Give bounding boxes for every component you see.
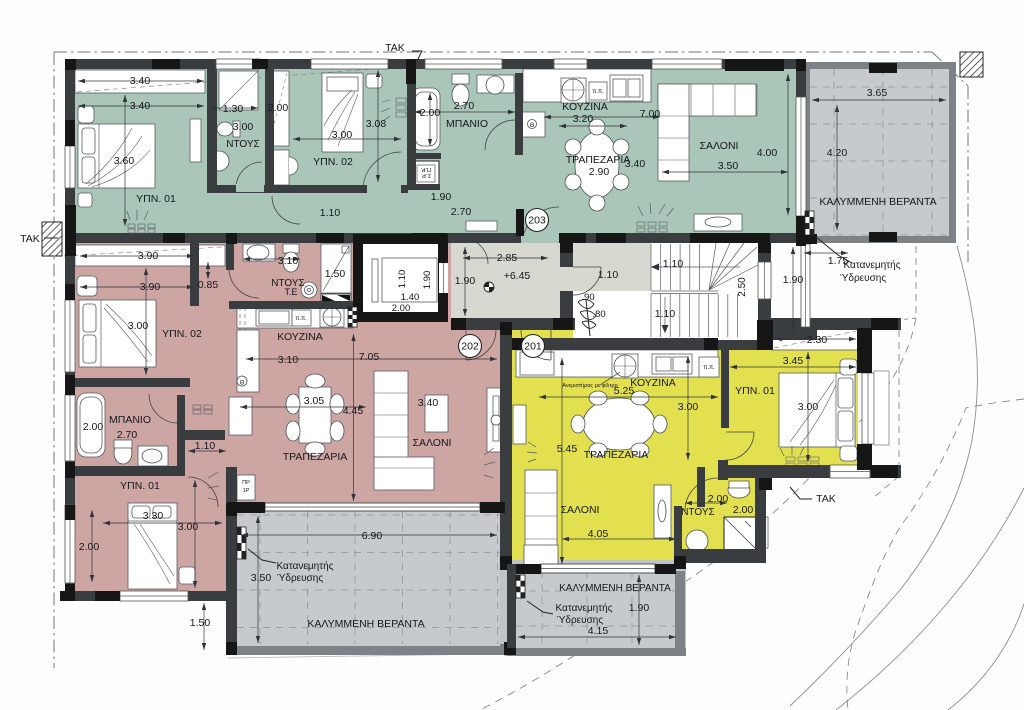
- svg-text:1.90: 1.90: [431, 191, 452, 203]
- svg-text:1.50: 1.50: [190, 617, 211, 629]
- svg-text:ΥΠΝ. 02: ΥΠΝ. 02: [162, 328, 202, 340]
- svg-text:1.10: 1.10: [195, 440, 216, 452]
- svg-text:ΤΡΑΠΕΖΑΡΙΑ: ΤΡΑΠΕΖΑΡΙΑ: [566, 154, 631, 166]
- svg-text:1.30: 1.30: [223, 103, 244, 115]
- svg-text:3.08: 3.08: [366, 118, 387, 130]
- svg-text:ΚΑΛΥΜΜΕΝΗ ΒΕΡΑΝΤΑ: ΚΑΛΥΜΜΕΝΗ ΒΕΡΑΝΤΑ: [559, 583, 671, 594]
- svg-text:Τ.Ε: Τ.Ε: [284, 287, 297, 297]
- svg-text:6.90: 6.90: [362, 530, 383, 542]
- svg-text:ΚΟΥΖΙΝΑ: ΚΟΥΖΙΝΑ: [277, 331, 322, 343]
- svg-text:4.45: 4.45: [343, 405, 364, 417]
- svg-text:ΚΟΥΖΙΝΑ: ΚΟΥΖΙΝΑ: [562, 101, 607, 113]
- svg-text:203: 203: [528, 215, 546, 227]
- svg-text:4.00: 4.00: [757, 147, 778, 159]
- svg-text:2.00: 2.00: [79, 541, 100, 553]
- svg-text:7.00: 7.00: [640, 108, 661, 120]
- svg-text:1.90: 1.90: [783, 274, 804, 286]
- svg-text:2.70: 2.70: [454, 100, 475, 112]
- svg-text:3.00: 3.00: [233, 121, 254, 133]
- svg-text:ΚΑΛΥΜΜΕΝΗ ΒΕΡΑΝΤΑ: ΚΑΛΥΜΜΕΝΗ ΒΕΡΑΝΤΑ: [307, 618, 424, 630]
- svg-text:3.00: 3.00: [332, 129, 353, 141]
- svg-text:1.10: 1.10: [320, 207, 341, 219]
- svg-text:3.40: 3.40: [130, 100, 151, 112]
- svg-text:3.30: 3.30: [143, 510, 164, 522]
- svg-text:201: 201: [524, 341, 542, 353]
- svg-text:ΚΑΛΥΜΜΕΝΗ ΒΕΡΑΝΤΑ: ΚΑΛΥΜΜΕΝΗ ΒΕΡΑΝΤΑ: [819, 196, 936, 208]
- svg-text:ΥΠΝ. 02: ΥΠΝ. 02: [313, 156, 353, 168]
- svg-text:3.45: 3.45: [783, 355, 804, 367]
- svg-text:1.10: 1.10: [655, 308, 676, 320]
- svg-text:3.40: 3.40: [418, 397, 439, 409]
- svg-text:1.90: 1.90: [455, 275, 476, 287]
- svg-text:2.30: 2.30: [807, 334, 828, 346]
- svg-text:0.85: 0.85: [198, 279, 219, 291]
- svg-text:3.05: 3.05: [304, 395, 325, 407]
- svg-text:ΤΡΑΠΕΖΑΡΙΑ: ΤΡΑΠΕΖΑΡΙΑ: [283, 451, 348, 463]
- svg-text:7.05: 7.05: [359, 351, 380, 363]
- svg-text:Θ: Θ: [530, 123, 535, 129]
- svg-text:ΠΡ: ΠΡ: [242, 480, 250, 486]
- svg-text:2.00: 2.00: [708, 493, 729, 505]
- svg-text:3.50: 3.50: [251, 572, 272, 584]
- svg-text:π.π.: π.π.: [592, 89, 604, 95]
- svg-text:π.π.: π.π.: [703, 365, 715, 371]
- svg-text:4.05: 4.05: [588, 528, 609, 540]
- svg-text:ΥΠΝ. 01: ΥΠΝ. 01: [735, 385, 775, 397]
- svg-text:3.60: 3.60: [114, 155, 135, 167]
- svg-text:.80: .80: [592, 309, 605, 320]
- svg-text:2.70: 2.70: [451, 206, 472, 218]
- svg-text:3.10: 3.10: [278, 255, 299, 267]
- svg-text:1.10: 1.10: [663, 258, 684, 270]
- svg-text:1.90: 1.90: [629, 602, 650, 614]
- svg-text:Σ.Ρ.: Σ.Ρ.: [421, 172, 431, 178]
- svg-text:2.00: 2.00: [392, 303, 411, 314]
- svg-text:4.20: 4.20: [827, 147, 848, 159]
- svg-text:3.00: 3.00: [178, 521, 199, 533]
- svg-text:2.00: 2.00: [733, 504, 754, 516]
- svg-text:Ανεμιστήρας με φίλτρο: Ανεμιστήρας με φίλτρο: [562, 382, 617, 389]
- svg-text:Π.Ρ.: Π.Ρ.: [421, 166, 431, 172]
- svg-text:3.00: 3.00: [128, 320, 149, 332]
- svg-text:Κατανεμητής: Κατανεμητής: [276, 560, 333, 572]
- svg-text:Ύδρευσης: Ύδρευσης: [277, 573, 323, 584]
- svg-text:3.00: 3.00: [678, 401, 699, 413]
- svg-text:1.50: 1.50: [325, 268, 346, 280]
- svg-text:2.85: 2.85: [497, 252, 518, 264]
- svg-text:ΥΠΝ. 01: ΥΠΝ. 01: [120, 480, 160, 492]
- svg-text:1.10: 1.10: [397, 270, 408, 289]
- svg-text:2.90: 2.90: [589, 166, 610, 178]
- svg-text:3.00: 3.00: [798, 401, 819, 413]
- svg-text:π.π.: π.π.: [295, 316, 307, 322]
- svg-text:ΤΑΚ: ΤΑΚ: [20, 233, 40, 245]
- svg-text:2.00: 2.00: [83, 421, 104, 433]
- svg-text:.90: .90: [581, 292, 594, 303]
- svg-text:5.45: 5.45: [557, 443, 578, 455]
- svg-text:ΣΑΛΟΝΙ: ΣΑΛΟΝΙ: [700, 140, 739, 152]
- svg-text:Θ: Θ: [240, 381, 245, 387]
- svg-text:ΝΤΟΥΣ: ΝΤΟΥΣ: [681, 507, 714, 518]
- svg-text:+6.45: +6.45: [504, 270, 531, 282]
- svg-text:ΣΑΛΟΝΙ: ΣΑΛΟΝΙ: [413, 437, 452, 449]
- svg-text:2.50: 2.50: [737, 277, 748, 297]
- svg-text:1Ρ: 1Ρ: [243, 488, 250, 494]
- svg-text:3.90: 3.90: [138, 250, 159, 262]
- svg-text:ΝΤΟΥΣ: ΝΤΟΥΣ: [226, 139, 259, 150]
- svg-text:3.90: 3.90: [140, 281, 161, 293]
- svg-text:ΣΑΛΟΝΙ: ΣΑΛΟΝΙ: [561, 504, 600, 516]
- svg-text:ΥΠΝ. 01: ΥΠΝ. 01: [136, 193, 176, 205]
- svg-text:3.20: 3.20: [573, 113, 594, 125]
- svg-text:1.90: 1.90: [422, 271, 433, 290]
- svg-text:ΤΡΑΠΕΖΑΡΙΑ: ΤΡΑΠΕΖΑΡΙΑ: [584, 449, 649, 461]
- svg-text:3.10: 3.10: [278, 354, 299, 366]
- svg-text:ΚΟΥΖΙΝΑ: ΚΟΥΖΙΝΑ: [630, 377, 675, 389]
- svg-text:ΜΠΑΝΙΟ: ΜΠΑΝΙΟ: [446, 118, 488, 130]
- svg-text:4.15: 4.15: [588, 625, 609, 637]
- svg-text:Κατανεμητής: Κατανεμητής: [843, 259, 900, 271]
- svg-text:2.00: 2.00: [420, 107, 441, 119]
- svg-text:1.40: 1.40: [401, 292, 420, 303]
- svg-text:Ύδρευσης: Ύδρευσης: [840, 273, 886, 284]
- svg-text:Κατανεμητής: Κατανεμητής: [555, 602, 612, 614]
- svg-text:ΤΑΚ: ΤΑΚ: [816, 493, 836, 505]
- svg-text:ΤΑΚ: ΤΑΚ: [385, 42, 405, 54]
- svg-text:3.40: 3.40: [130, 75, 151, 87]
- svg-text:3.40: 3.40: [625, 158, 646, 170]
- svg-text:202: 202: [461, 341, 479, 353]
- svg-text:1.10: 1.10: [598, 269, 619, 281]
- svg-text:3.50: 3.50: [718, 160, 739, 172]
- svg-text:2.00: 2.00: [268, 102, 289, 114]
- svg-text:2.70: 2.70: [117, 429, 138, 441]
- svg-text:3.65: 3.65: [867, 87, 888, 99]
- svg-text:ΜΠΑΝΙΟ: ΜΠΑΝΙΟ: [109, 414, 151, 426]
